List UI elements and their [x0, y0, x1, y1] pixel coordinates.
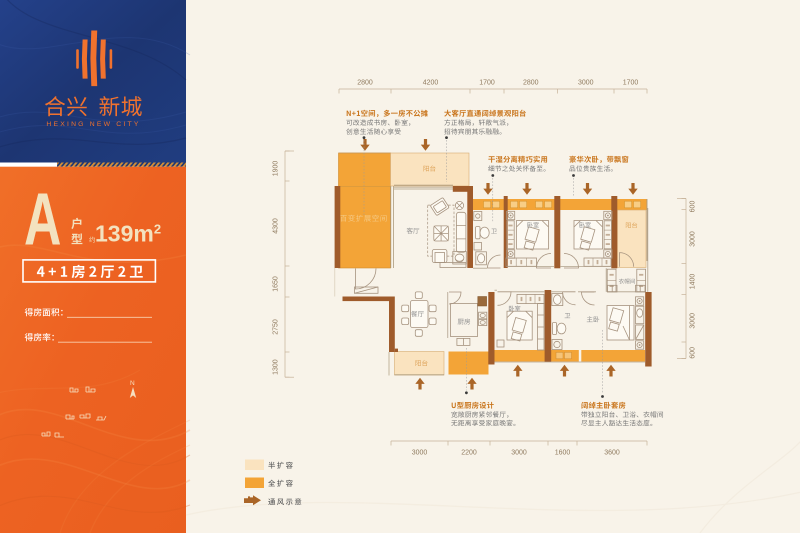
svg-text:600: 600: [690, 347, 697, 359]
svg-text:3000: 3000: [690, 231, 697, 247]
svg-text:1300: 1300: [273, 359, 280, 375]
svg-text:139m2: 139m2: [95, 221, 161, 247]
svg-text:A: A: [24, 177, 61, 260]
svg-text:3600: 3600: [604, 450, 620, 457]
svg-text:2800: 2800: [357, 80, 373, 87]
svg-text:1400: 1400: [690, 274, 697, 290]
svg-text:3000: 3000: [412, 450, 428, 457]
svg-text:3000: 3000: [690, 313, 697, 329]
svg-text:600: 600: [690, 201, 697, 213]
svg-text:1900: 1900: [273, 161, 280, 177]
svg-text:4200: 4200: [423, 80, 439, 87]
svg-text:1600: 1600: [555, 450, 571, 457]
svg-text:2800: 2800: [523, 80, 539, 87]
svg-text:3000: 3000: [511, 450, 527, 457]
svg-text:1700: 1700: [479, 80, 495, 87]
svg-text:1700: 1700: [623, 80, 639, 87]
svg-text:HEXING NEW CITY: HEXING NEW CITY: [46, 121, 140, 128]
svg-text:N: N: [130, 380, 135, 387]
svg-text:4300: 4300: [273, 218, 280, 234]
svg-text:2200: 2200: [461, 450, 477, 457]
svg-text:3000: 3000: [578, 80, 594, 87]
svg-text:2750: 2750: [273, 319, 280, 335]
svg-text:1650: 1650: [273, 276, 280, 292]
